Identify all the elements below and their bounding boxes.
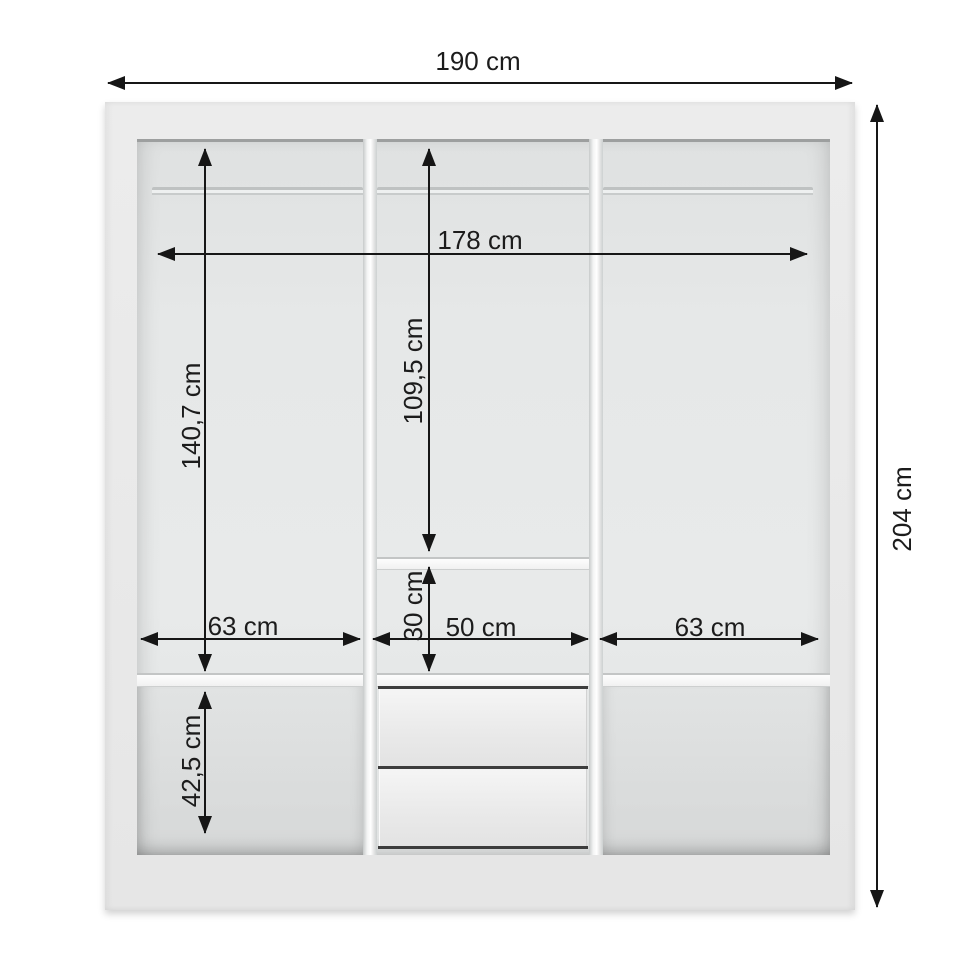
dimension-label-right-section-width: 63 cm <box>675 614 746 640</box>
dimension-label-left-section-width: 63 cm <box>208 613 279 639</box>
shelf-left <box>137 673 363 686</box>
dimension-label-left-section-height: 140,7 cm <box>178 363 204 470</box>
drawer-front-upper <box>379 689 587 766</box>
dimension-label-bottom-section-height: 42,5 cm <box>178 715 204 808</box>
wardrobe-dimension-diagram: 190 cm 178 cm 63 cm 50 cm 63 cm 204 cm 1… <box>0 0 975 975</box>
dimension-arrow-center-shelf-gap <box>428 567 430 671</box>
shelf-center-upper <box>377 557 589 569</box>
dimension-label-center-section-height: 109,5 cm <box>400 318 426 425</box>
dimension-label-interior-width: 178 cm <box>437 227 522 253</box>
lower-compartment-right <box>603 686 830 855</box>
partition-left <box>363 139 377 855</box>
dimension-label-center-shelf-gap: 30 cm <box>400 571 426 642</box>
partition-right <box>589 139 603 855</box>
hanging-rod-right <box>603 187 813 197</box>
dimension-arrow-overall-width <box>108 82 852 84</box>
lower-compartment-left <box>137 686 363 855</box>
drawer-front-lower <box>379 769 587 846</box>
hanging-rod-left <box>152 187 363 197</box>
shelf-center-lower <box>377 673 589 686</box>
dimension-label-overall-height: 204 cm <box>889 466 915 551</box>
hanging-rod-center <box>377 187 589 197</box>
dimension-arrow-overall-height <box>876 105 878 907</box>
dimension-label-center-section-width: 50 cm <box>446 614 517 640</box>
dimension-arrow-center-section-height <box>428 149 430 551</box>
drawer-gap-line-bottom <box>378 846 588 849</box>
shelf-right <box>603 673 830 686</box>
dimension-label-overall-width: 190 cm <box>435 48 520 74</box>
